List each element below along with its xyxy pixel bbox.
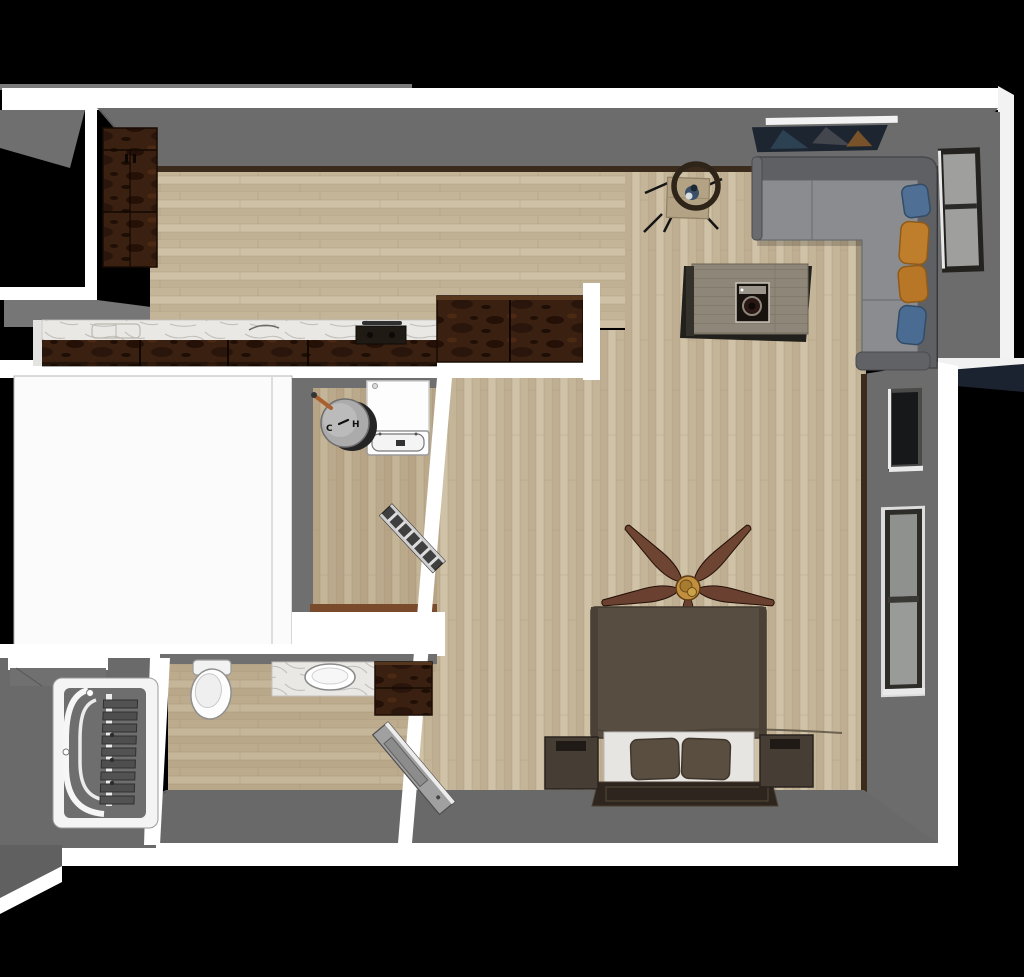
pillow: [896, 305, 927, 346]
washer-dot1: [379, 433, 382, 436]
bathroom-cabinet: [375, 662, 432, 715]
vase-cap: [691, 185, 698, 192]
stair-steps: [100, 700, 138, 804]
player-disc-center: [749, 303, 756, 310]
window-glass: [890, 514, 917, 597]
cabinet-shadow: [42, 362, 437, 367]
throw-pillow-mustard-1: [899, 221, 930, 265]
window-glass2: [890, 602, 917, 685]
vanity-sink-basin: [312, 668, 348, 684]
left-outer-wall-band: [0, 287, 97, 300]
window-sash: [888, 596, 919, 603]
burner1: [367, 332, 373, 338]
cooktop-handle: [362, 321, 402, 325]
sofa-shadow2: [856, 240, 862, 368]
bed-duvet-edge-right: [759, 607, 766, 738]
pantry-handle2: [133, 154, 136, 163]
cooktop: [356, 326, 406, 344]
washing-machine: [367, 381, 429, 455]
table-left-edge: [686, 266, 694, 336]
pantry-handle1: [125, 154, 128, 163]
throw-pillow-mustard-2: [897, 265, 928, 303]
sofa-arm-bottom: [856, 352, 930, 370]
throw-pillow-blue-2: [896, 305, 927, 346]
cabinet-top-edge: [375, 662, 432, 665]
white-room: [14, 376, 292, 652]
window-glass-dark: [892, 392, 918, 465]
pantry-cabinet: [103, 128, 157, 267]
vanity: [272, 662, 375, 696]
bedroom-upper-window: [888, 388, 923, 472]
window-glass: [943, 153, 979, 266]
kitchen-wall-stub-white: [583, 283, 600, 380]
top-right-outer-wall: [998, 86, 1014, 362]
hot-water-label: H: [352, 420, 360, 430]
ledge-trim: [8, 656, 108, 670]
pillow: [897, 265, 928, 303]
pillow: [901, 183, 931, 218]
living-room-window: [938, 147, 984, 272]
right-wall-bedroom: [861, 362, 958, 866]
burner2: [389, 332, 395, 338]
top-outer-wall-band: [2, 88, 1000, 110]
counter-left-edge: [33, 320, 42, 366]
vase-highlight: [686, 193, 693, 200]
washer-control: [396, 440, 405, 446]
nightstand-left: [545, 737, 598, 789]
bedroom-lower-window: [881, 506, 925, 698]
right-outer-wall-band: [938, 362, 958, 866]
bottom-wall: [46, 790, 958, 866]
sofa-arm-left: [752, 157, 762, 240]
pillow: [899, 221, 930, 265]
laundry-left-wall: [292, 378, 313, 613]
pipe-valve: [311, 392, 317, 398]
sofa-shadow1: [757, 240, 862, 246]
washer-hose1: [373, 384, 378, 389]
hinge-dot2: [110, 758, 114, 762]
bed-pillow-left: [630, 738, 679, 780]
hinge-dot3: [110, 781, 114, 785]
left-outer-wall-strip: [85, 110, 97, 290]
player-knob: [741, 289, 744, 292]
wall-art: [752, 116, 899, 153]
bed-duvet-edge-left: [591, 607, 598, 738]
nightstand-right: [760, 735, 813, 787]
bottom-wall-face: [60, 790, 940, 845]
top-left-wall-wedge: [0, 110, 85, 168]
window-highlight: [888, 389, 891, 469]
bed-duvet: [591, 607, 766, 738]
bottom-outer-wall-band: [46, 843, 958, 866]
nightstand-top-inset: [770, 739, 800, 749]
headboard: [592, 782, 778, 806]
bed-pillow-right: [681, 738, 730, 780]
floorplan-render: C H: [0, 0, 1024, 977]
record-player: [736, 283, 769, 322]
corner-cabinet-topedge: [437, 296, 583, 300]
nightstand-top-inset: [556, 741, 586, 751]
bedroom-right-baseboard: [861, 374, 867, 792]
staircase: [53, 678, 158, 828]
hinge-dot1: [110, 733, 114, 737]
rail-post: [63, 749, 69, 755]
washer-dot2: [415, 433, 418, 436]
fan-hub-light: [688, 588, 697, 597]
cold-water-label: C: [326, 424, 333, 434]
newel-post: [87, 690, 94, 697]
stairwell: [0, 656, 170, 914]
coffee-table: [680, 264, 812, 342]
throw-pillow-blue-1: [901, 183, 931, 218]
